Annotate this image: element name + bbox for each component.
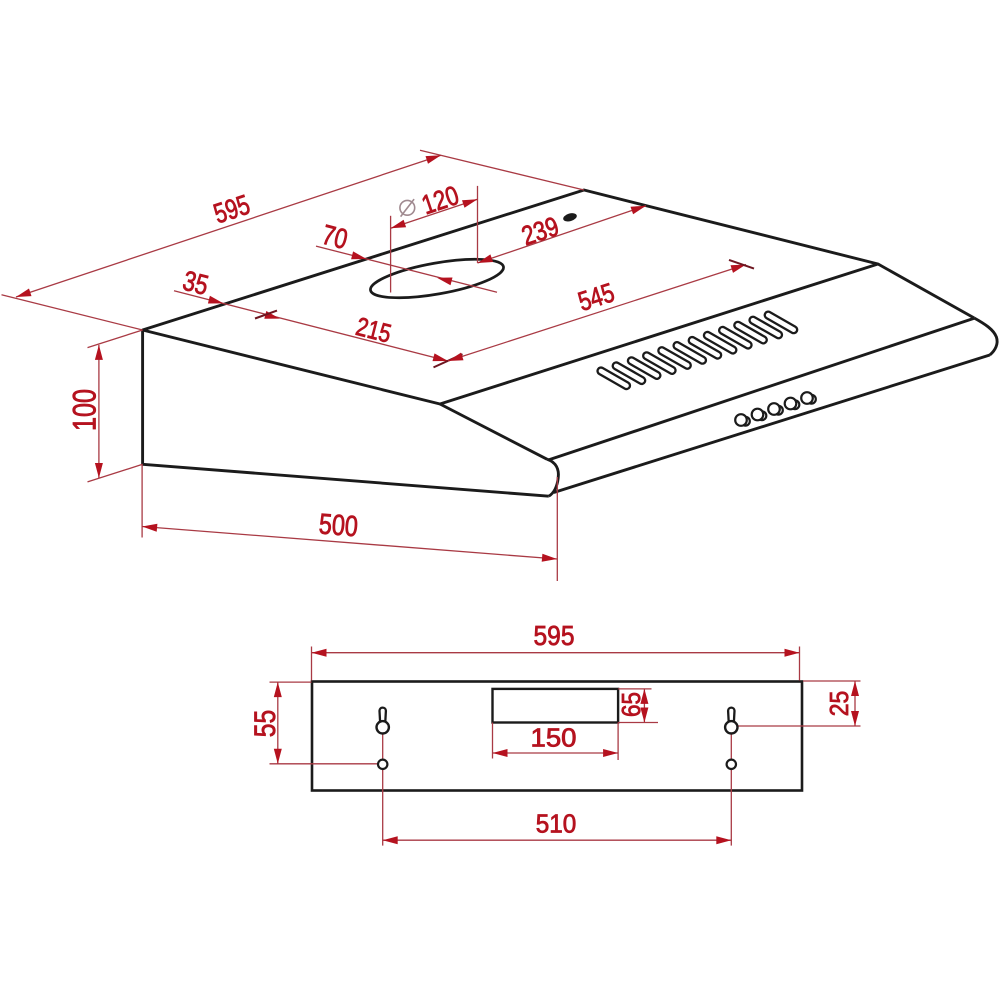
svg-text:55: 55	[249, 710, 282, 738]
svg-text:500: 500	[318, 508, 359, 543]
svg-text:25: 25	[824, 691, 854, 717]
svg-text:150: 150	[531, 722, 577, 752]
svg-text:65: 65	[616, 692, 646, 717]
svg-text:120: 120	[418, 180, 463, 220]
svg-text:510: 510	[536, 809, 577, 839]
svg-text:70: 70	[319, 219, 351, 255]
svg-text:595: 595	[534, 620, 575, 651]
svg-text:595: 595	[210, 189, 254, 230]
svg-text:35: 35	[180, 265, 212, 301]
svg-text:100: 100	[66, 389, 102, 431]
